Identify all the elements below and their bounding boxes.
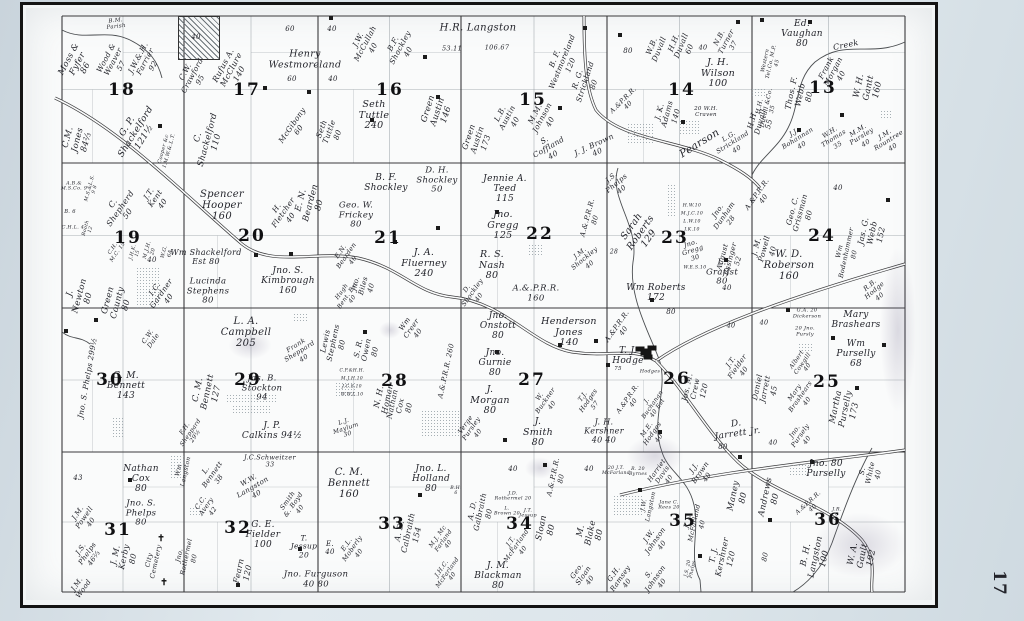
stipple-patch: [528, 244, 544, 256]
parcel-label: Geo. W. Frickey 80: [339, 202, 374, 231]
parcel-label: 20 Jno. Pursly: [795, 326, 815, 337]
parcel-label: S. White 40: [857, 460, 885, 487]
house-marker: [882, 343, 886, 347]
section-number: 33: [378, 514, 406, 534]
section-number: 27: [518, 370, 546, 390]
house-marker: [698, 554, 702, 558]
section-number: 21: [374, 228, 402, 248]
parcel-label: B. 6: [64, 210, 76, 216]
parcel-label: 40: [584, 466, 594, 474]
parcel-label: L. Graffst 80: [706, 259, 738, 288]
section-number: 34: [506, 514, 534, 534]
house-marker: [760, 18, 764, 22]
parcel-label: 20 J.T. McFarland: [602, 466, 630, 476]
parcel-label: B. F. Shockley: [364, 173, 408, 193]
parcel-label: B.M. Parish: [106, 17, 126, 31]
parcel-label: T. Jessup 20: [291, 534, 318, 559]
parcel-label: J. A. Fluerney 240: [401, 248, 446, 280]
house-marker: [64, 329, 68, 333]
parcel-label: A.&.P.R.R. 160: [512, 284, 559, 303]
section-number: 32: [224, 518, 252, 538]
parcel-label: Jno. 80 Purselly: [806, 459, 845, 479]
parcel-label: H.R. Langston: [440, 22, 517, 33]
parcel-label: Jno. Furguson 40 80: [284, 570, 348, 589]
map-layer: ✝✝B.M. ParishMoss & Fyfer 86Wood & Weave…: [0, 0, 1024, 621]
house-marker: [543, 463, 547, 467]
parcel-label: 106.67: [485, 44, 510, 51]
parcel-label: Wm Shackelford Est 80: [170, 249, 241, 267]
parcel-label: J.C.Schweitzer 33: [244, 455, 296, 470]
section-number: 23: [661, 228, 689, 248]
parcel-label: M.J.H.10: [341, 378, 363, 383]
stipple-patch: [421, 410, 459, 438]
parcel-label: Mary Brashears: [831, 310, 880, 330]
section-number: 29: [234, 370, 262, 390]
house-marker: [329, 16, 333, 20]
parcel-label: Lucinda Stephens 80: [187, 278, 229, 307]
parcel-label: Jno. Gurnie 80: [478, 348, 511, 378]
parcel-label: 80: [718, 444, 728, 452]
parcel-label: Jennie A. Teed 115: [483, 174, 527, 204]
parcel-label: Wm Purselly 68: [836, 339, 875, 369]
parcel-label: Spencer Hooper 160: [200, 189, 244, 223]
stipple-patch: [880, 110, 892, 119]
parcel-label: 60: [285, 26, 295, 34]
parcel-label: Jane C. Rees 20: [658, 501, 679, 512]
parcel-label: 40: [508, 466, 518, 474]
parcel-label: 40: [191, 34, 201, 42]
section-number: 35: [669, 511, 697, 531]
section-number: 30: [96, 370, 124, 390]
parcel-label: 40: [727, 322, 736, 329]
parcel-label: J. P. Calkins 94½: [242, 421, 302, 441]
parcel-label: 40: [760, 319, 769, 326]
stipple-patch: [627, 123, 653, 143]
parcel-label: 80: [666, 309, 676, 317]
stipple-patch: [293, 313, 307, 323]
parcel-label: 28: [610, 250, 618, 257]
house-marker: [736, 20, 740, 24]
parcel-label: J. H. Kershner 40 40: [584, 419, 624, 446]
parcel-label: 40: [769, 439, 778, 446]
parcel-label: L.W.10: [683, 219, 701, 224]
section-number: 26: [663, 369, 691, 389]
parcel-label: R. 20 Byrnes: [629, 467, 647, 477]
section-number: 22: [526, 224, 554, 244]
map-canvas: ✝✝B.M. ParishMoss & Fyfer 86Wood & Weave…: [26, 8, 932, 600]
parcel-label: J.D. Rothermel 20: [495, 492, 532, 503]
house-marker: [503, 438, 507, 442]
house-marker: [840, 113, 844, 117]
house-marker: [786, 308, 790, 312]
section-number: 15: [519, 90, 547, 110]
section-number: 28: [381, 371, 409, 391]
parcel-label: Seth Tuttle 240: [359, 100, 390, 132]
parcel-label: R. S. Nash 80: [479, 250, 505, 282]
stipple-patch: [112, 417, 124, 437]
house-marker: [583, 26, 587, 30]
parcel-label: G.A. 20 Dickerson: [793, 308, 821, 319]
parcel-label: Wm Roberts 172: [626, 283, 685, 303]
parcel-label: 60: [287, 76, 297, 84]
cemetery-cross-icon: ✝: [160, 578, 168, 588]
parcel-label: Jno. Onstott 80: [480, 311, 516, 341]
parcel-label: T. J. Hodge: [612, 346, 644, 366]
section-number: 18: [108, 80, 136, 100]
parcel-label: H.W.10: [683, 203, 702, 208]
section-number: 13: [809, 78, 837, 98]
map-frame: ✝✝B.M. ParishMoss & Fyfer 86Wood & Weave…: [20, 2, 938, 608]
parcel-label: 75: [614, 366, 622, 372]
atlas-page: ✝✝B.M. ParishMoss & Fyfer 86Wood & Weave…: [0, 0, 1024, 621]
house-marker: [158, 124, 162, 128]
house-marker: [307, 90, 311, 94]
parcel-label: Ed. Vaughan 80: [781, 19, 823, 49]
parcel-label: 40: [699, 44, 708, 51]
house-marker: [423, 55, 427, 59]
parcel-label: 40: [722, 285, 732, 293]
house-marker: [289, 252, 293, 256]
parcel-label: J. M. Kerby 80: [109, 542, 141, 572]
parcel-label: 43: [73, 475, 83, 483]
parcel-label: J.C.S.10: [342, 386, 362, 391]
parcel-label: 53.11: [442, 45, 462, 52]
section-number: 17: [233, 80, 261, 100]
house-marker: [831, 336, 835, 340]
parcel-label: A.B.& M.S.Co. 9: [61, 182, 87, 193]
parcel-label: Henderson Jones 140: [541, 317, 597, 349]
parcel-label: E. 40: [325, 541, 335, 557]
section-number: 16: [376, 80, 404, 100]
parcel-label: J. Smith 80: [523, 417, 553, 449]
parcel-label: W.E.S.10: [684, 265, 707, 270]
house-marker: [638, 488, 642, 492]
house-marker: [254, 253, 258, 257]
house-marker: [436, 226, 440, 230]
parcel-label: C. M. Bennett 160: [328, 467, 370, 501]
house-marker: [94, 318, 98, 322]
parcel-label: Hodges: [640, 369, 660, 374]
parcel-label: Jno. S. Kimbrough 160: [261, 266, 315, 296]
house-marker: [681, 120, 685, 124]
house-marker: [855, 386, 859, 390]
parcel-label: 40: [147, 257, 157, 265]
parcel-label: C.P.&H.H.: [339, 370, 364, 375]
parcel-label: Henry Westmoreland: [269, 49, 342, 70]
section-number: 24: [808, 226, 836, 246]
parcel-label: C.H.L. 4: [62, 225, 84, 230]
parcel-label: 40: [833, 185, 843, 193]
parcel-label: Jas. G. Webb 152: [857, 217, 889, 250]
section-number: 20: [238, 226, 266, 246]
creek-line: [62, 332, 90, 344]
parcel-label: S. R. Owen 80: [352, 336, 381, 364]
parcel-label: W. D. Roberson 160: [764, 249, 815, 283]
stipple-patch: [232, 405, 272, 413]
house-marker: [886, 198, 890, 202]
house-marker: [738, 455, 742, 459]
section-number: 36: [814, 510, 842, 530]
house-marker: [263, 86, 267, 90]
parcel-label: 80: [623, 48, 633, 56]
section-number: 14: [668, 80, 696, 100]
parcel-label: M.J.C.10: [681, 211, 703, 216]
house-marker: [618, 33, 622, 37]
parcel-label: 40: [327, 26, 337, 34]
parcel-label: W.W.L.10: [341, 394, 364, 399]
section-number: 25: [813, 372, 841, 392]
house-marker: [363, 330, 367, 334]
parcel-label: D. H. Shockley 50: [416, 167, 457, 196]
parcel-label: 40: [328, 76, 338, 84]
stipple-patch: [667, 184, 677, 216]
parcel-label: J. Morgan 80: [470, 385, 510, 417]
parcel-label: B.H. 6: [450, 486, 462, 496]
parcel-label: 20 W.H. Craven: [694, 106, 718, 118]
frame-inner-gap: ✝✝B.M. ParishMoss & Fyfer 86Wood & Weave…: [23, 5, 935, 605]
section-number: 19: [114, 228, 142, 248]
parcel-label: Jno. Gregg 125: [487, 210, 518, 242]
parcel-label: L. A. Campbell 205: [221, 316, 272, 350]
parcel-label: Nathan Cox 80: [123, 464, 159, 494]
page-number: 17: [989, 570, 1009, 596]
parcel-label: M. Blake 80: [574, 517, 607, 548]
parcel-label: J. H. Wilson 100: [701, 58, 735, 90]
cemetery-cross-icon: ✝: [157, 534, 165, 544]
section-number: 31: [104, 520, 132, 540]
house-marker: [606, 363, 610, 367]
parcel-label: Jno. L. Holland 80: [412, 464, 450, 494]
